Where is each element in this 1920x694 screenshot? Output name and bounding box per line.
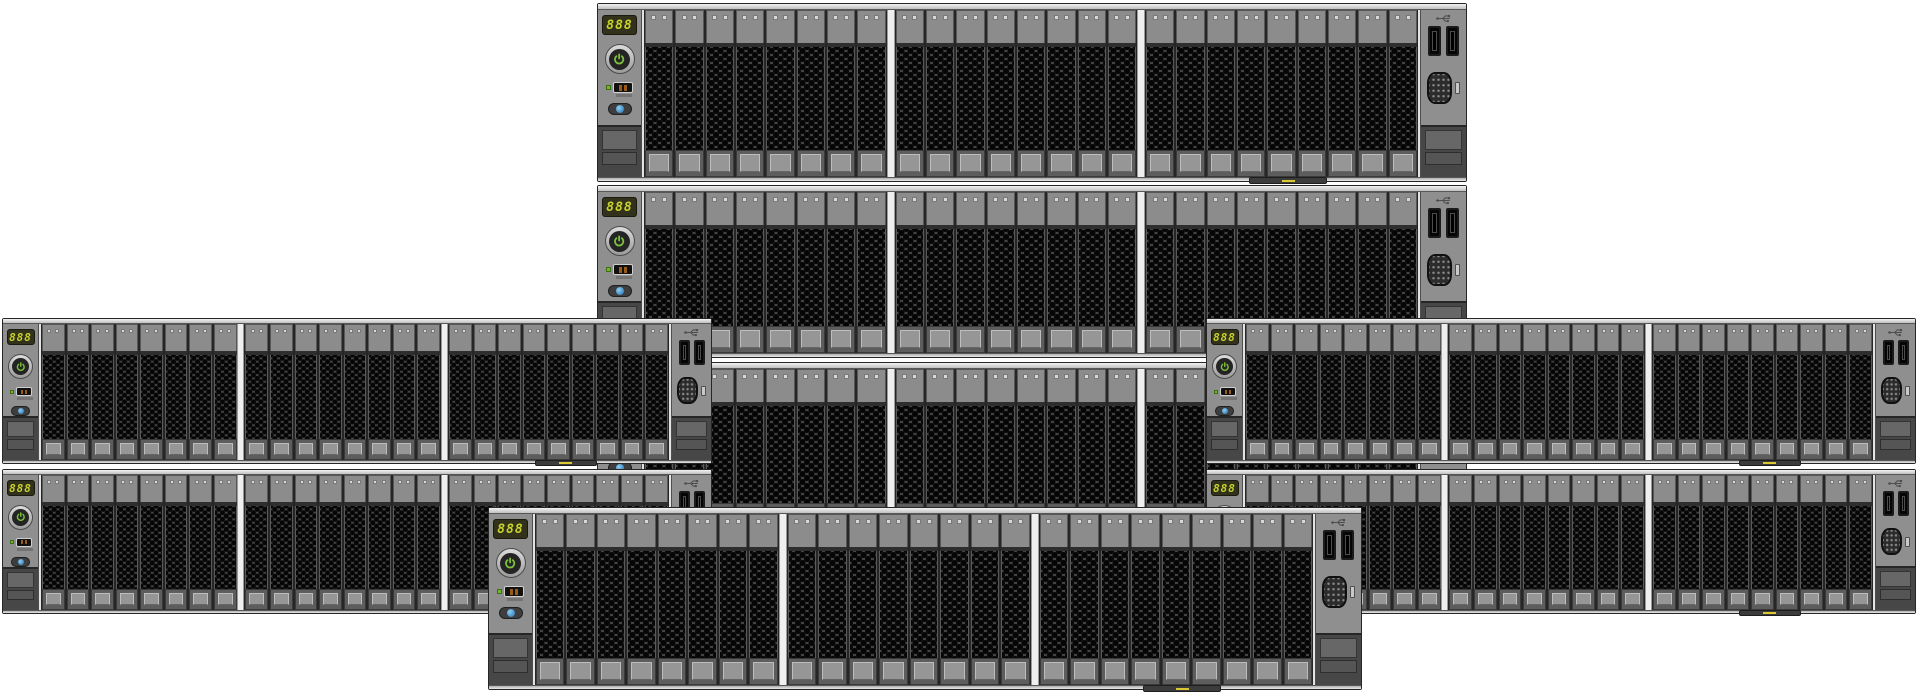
drive-led (943, 374, 948, 379)
drive-vent-grille (1849, 355, 1872, 439)
drive-bay (736, 192, 764, 353)
usb-port-row (1883, 340, 1909, 365)
drive-vent-grille (1572, 355, 1595, 439)
latch-handle (1211, 421, 1238, 437)
drive-led (1333, 329, 1337, 333)
drive-led (1251, 329, 1255, 333)
drive-bay (1078, 369, 1106, 530)
usb-port-row (1428, 208, 1459, 238)
chassis-bottom-rail (3, 460, 711, 463)
drive-group (644, 10, 887, 177)
drive-led (1345, 15, 1350, 20)
drive-vent-grille (1237, 229, 1265, 326)
drive-latch-handle (1112, 330, 1132, 348)
drive-vent-grille (827, 229, 855, 326)
drive-carrier-top (1223, 514, 1251, 547)
drive-led (927, 519, 932, 524)
drive-led (1561, 480, 1565, 484)
drive-led (1349, 329, 1353, 333)
drive-vent-grille (572, 355, 595, 439)
drive-led (1627, 329, 1631, 333)
drive-led (1658, 329, 1662, 333)
usb-port-row (679, 340, 705, 365)
drive-bay (1146, 192, 1174, 353)
drive-latch (1176, 150, 1204, 177)
chassis-bottom-rail (1207, 460, 1915, 463)
drive-bay (214, 475, 237, 610)
uid-button (1215, 406, 1234, 416)
drive-led (105, 480, 109, 484)
drive-latch (1727, 439, 1750, 460)
drive-led (552, 329, 556, 333)
drive-latch (1001, 658, 1029, 685)
drive-carrier-top (1358, 192, 1386, 225)
uid-led (616, 287, 624, 295)
drive-group (895, 10, 1138, 177)
usb-port (1883, 491, 1894, 516)
drive-bay (1776, 475, 1799, 610)
asset-tag (1249, 177, 1327, 184)
drive-latch-handle (1150, 330, 1170, 348)
drive-vent-grille (1295, 355, 1318, 439)
mini-display (613, 82, 633, 93)
drive-carrier-top (498, 475, 521, 502)
drive-led (1528, 329, 1532, 333)
drive-led (1537, 480, 1541, 484)
drive-latch (987, 326, 1015, 353)
drive-led (1054, 197, 1059, 202)
drive-led (154, 480, 158, 484)
drive-led (1586, 480, 1590, 484)
right-ear-latch (1316, 633, 1361, 685)
drive-bay (788, 514, 816, 685)
drive-bay (940, 514, 968, 685)
drive-latch (1271, 439, 1294, 460)
drive-latch (245, 589, 268, 610)
drive-carrier-top (706, 10, 734, 43)
drive-led (528, 329, 532, 333)
drive-latch-handle (740, 154, 760, 172)
drive-latch-handle (1503, 443, 1518, 455)
drive-carrier-top (1328, 192, 1356, 225)
drive-bay (627, 514, 655, 685)
drive-led (1259, 329, 1263, 333)
drive-carrier-top (1298, 10, 1326, 43)
drive-vent-grille (42, 355, 65, 439)
drive-led (742, 374, 747, 379)
drive-bay (1678, 324, 1701, 460)
drive-group (244, 324, 440, 460)
drive-vent-grille (719, 551, 747, 658)
drive-led (1855, 329, 1859, 333)
drive-vent-grille (1223, 551, 1251, 658)
drive-led (794, 519, 799, 524)
drive-carrier-top (1776, 324, 1799, 351)
power-button (496, 548, 526, 578)
drive-led (1168, 519, 1173, 524)
drive-latch-handle (710, 330, 730, 348)
drive-latch (393, 589, 416, 610)
drive-bay (879, 514, 907, 685)
drive-carrier-top (926, 369, 954, 402)
asset-tag-led (1176, 688, 1189, 690)
drive-led (1244, 15, 1249, 20)
drive-group-divider (779, 514, 787, 685)
drive-latch-handle (1166, 662, 1186, 680)
drive-led (1107, 519, 1112, 524)
drive-vent-grille (449, 355, 472, 439)
drive-bay (270, 324, 293, 460)
drive-bay (344, 324, 367, 460)
drive-carrier-top (393, 324, 416, 351)
drive-led (864, 197, 869, 202)
drive-bay (245, 475, 268, 610)
drive-led (1399, 329, 1403, 333)
drive-latch-handle (1780, 593, 1795, 605)
drive-led (1084, 15, 1089, 20)
drive-bay (1078, 10, 1106, 177)
drive-led (1183, 197, 1188, 202)
drive-carrier-top (1449, 324, 1472, 351)
drive-led (1244, 197, 1249, 202)
drive-carrier-top (566, 514, 594, 547)
drive-led (577, 329, 581, 333)
drive-latch (621, 439, 644, 460)
drive-latch (857, 150, 885, 177)
drive-led (406, 329, 410, 333)
drive-carrier-top (1047, 192, 1075, 225)
drive-vent-grille (1523, 355, 1546, 439)
drive-latch-handle (1625, 443, 1640, 455)
drive-bay (1162, 514, 1190, 685)
drive-latch (910, 658, 938, 685)
drive-vent-grille (736, 406, 764, 503)
drive-latch (1751, 439, 1774, 460)
drive-latch (1800, 439, 1823, 460)
drive-bay (245, 324, 268, 460)
drive-latch-handle (1453, 443, 1468, 455)
drive-led (195, 329, 199, 333)
drive-carrier-top (1040, 514, 1068, 547)
drive-led (1325, 480, 1329, 484)
drive-led (1153, 15, 1158, 20)
drive-carrier-top (1825, 324, 1848, 351)
drive-bay (1131, 514, 1159, 685)
drive-led (1163, 15, 1168, 20)
drive-vent-grille (971, 551, 999, 658)
usb-icon (683, 479, 701, 489)
drive-vent-grille (926, 406, 954, 503)
drive-vent-grille (523, 355, 546, 439)
drive-carrier-top (116, 324, 139, 351)
asset-tag-led (1282, 180, 1295, 182)
drive-carrier-top (1389, 192, 1417, 225)
vga-port (1427, 72, 1452, 104)
drive-led (723, 15, 728, 20)
drive-bay (1678, 475, 1701, 610)
drive-led (943, 197, 948, 202)
chassis-bottom-rail (598, 177, 1466, 181)
drive-led (528, 480, 532, 484)
drive-led (357, 329, 361, 333)
drive-led (398, 480, 402, 484)
drive-latch-handle (625, 443, 640, 455)
right-ear-latch (1876, 416, 1915, 460)
latch-handle (602, 130, 637, 150)
drive-latch (1176, 326, 1204, 353)
drive-latch-handle (1005, 662, 1025, 680)
drive-latch (987, 150, 1015, 177)
drive-bay (536, 514, 564, 685)
drive-carrier-top (67, 324, 90, 351)
drive-bay (797, 192, 825, 353)
drive-led (943, 15, 948, 20)
drive-latch-handle (1552, 443, 1567, 455)
drive-latch (645, 439, 668, 460)
drive-led (145, 329, 149, 333)
drive-latch-handle (1601, 593, 1616, 605)
drive-bay (1849, 324, 1872, 460)
drive-latch-handle (960, 330, 980, 348)
drive-carrier-top (788, 514, 816, 547)
drive-bay (1825, 475, 1848, 610)
drive-led (1707, 480, 1711, 484)
drive-latch-handle (723, 662, 743, 680)
drive-bay (1751, 324, 1774, 460)
drive-carrier-top (827, 192, 855, 225)
drive-led (1084, 374, 1089, 379)
drive-carrier-top (896, 192, 924, 225)
drive-latch-handle (453, 593, 468, 605)
drive-latch (1702, 589, 1725, 610)
drive-led (1365, 197, 1370, 202)
drive-carrier-top (140, 324, 163, 351)
drive-led (1553, 480, 1557, 484)
drive-vent-grille (1849, 506, 1872, 589)
drive-latch (417, 589, 440, 610)
drive-led (825, 519, 830, 524)
drive-led (1284, 197, 1289, 202)
drive-latch-handle (1074, 662, 1094, 680)
drive-latch-handle (861, 154, 881, 172)
drive-latch (1284, 658, 1312, 685)
drive-latch-handle (421, 593, 436, 605)
drive-led (1254, 197, 1259, 202)
drive-group-divider (237, 475, 244, 610)
drive-vent-grille (42, 506, 65, 589)
drive-latch-handle (944, 662, 964, 680)
drive-led (1374, 329, 1378, 333)
io-panel (1875, 324, 1915, 460)
drive-carrier-top (1800, 475, 1823, 502)
drive-led (431, 480, 435, 484)
drive-vent-grille (245, 506, 268, 589)
drive-latch (270, 439, 293, 460)
drive-led (1765, 329, 1769, 333)
drive-carrier-top (1295, 324, 1318, 351)
drive-carrier-top (1621, 475, 1644, 502)
drive-bay (1393, 324, 1416, 460)
drive-bay (896, 369, 924, 530)
drive-led (1290, 519, 1295, 524)
drive-vent-grille (621, 355, 644, 439)
drive-bay (827, 10, 855, 177)
power-button (1212, 354, 1237, 379)
drive-carrier-top (295, 324, 318, 351)
drive-bay (1047, 192, 1075, 353)
drive-bay (1702, 475, 1725, 610)
drive-latch-handle (323, 443, 338, 455)
drive-vent-grille (1017, 406, 1045, 503)
drive-latch (1572, 439, 1595, 460)
drive-latch (42, 589, 65, 610)
drive-latch (1751, 589, 1774, 610)
uid-led (616, 105, 624, 113)
drive-led (963, 15, 968, 20)
drive-vent-grille (1108, 47, 1136, 150)
drive-led (47, 480, 51, 484)
drive-led (662, 197, 667, 202)
drive-led (1125, 15, 1130, 20)
drive-vent-grille (1369, 355, 1392, 439)
drive-led (1431, 329, 1435, 333)
drive-latch-handle (1275, 443, 1290, 455)
drive-latch-handle (914, 662, 934, 680)
drive-led (1193, 374, 1198, 379)
drive-carrier-top (596, 475, 619, 502)
drive-group (1245, 324, 1441, 460)
drive-vent-grille (1108, 229, 1136, 326)
drive-led (1707, 329, 1711, 333)
drive-led (682, 197, 687, 202)
drive-vent-grille (766, 229, 794, 326)
chassis-bottom-rail (489, 685, 1361, 689)
drive-led (725, 519, 730, 524)
drive-led (1179, 519, 1184, 524)
drive-vent-grille (857, 406, 885, 503)
drive-led (1789, 329, 1793, 333)
drive-led (1334, 15, 1339, 20)
health-led (1214, 390, 1218, 394)
drive-latch (1246, 439, 1269, 460)
drive-latch-handle (991, 330, 1011, 348)
drive-latch-handle (144, 443, 159, 455)
drive-led (1153, 374, 1158, 379)
drive-led (1183, 15, 1188, 20)
drive-led (1148, 519, 1153, 524)
drive-bay (987, 192, 1015, 353)
drive-carrier-top (91, 324, 114, 351)
drive-led (487, 480, 491, 484)
drive-bay (270, 475, 293, 610)
drive-led (1512, 329, 1516, 333)
drive-led (398, 329, 402, 333)
vga-port (1427, 254, 1452, 286)
drive-vent-grille (597, 551, 625, 658)
drive-bay (987, 10, 1015, 177)
drive-bay (857, 369, 885, 530)
drive-led (129, 329, 133, 333)
drive-latch-handle (831, 330, 851, 348)
drive-led (1537, 329, 1541, 333)
drive-led (1034, 15, 1039, 20)
drive-bay (368, 324, 391, 460)
drive-latch-handle (1853, 443, 1868, 455)
drive-latch-handle (1227, 662, 1247, 680)
drive-latch-handle (1829, 443, 1844, 455)
drive-latch (940, 658, 968, 685)
drive-latch-handle (1271, 154, 1291, 172)
drive-bay (1523, 324, 1546, 460)
drive-latch-handle (1241, 154, 1261, 172)
drive-carrier-top (189, 475, 212, 502)
drive-led (814, 197, 819, 202)
drive-led (803, 374, 808, 379)
drive-latch-handle (421, 443, 436, 455)
drive-bay (736, 369, 764, 530)
drive-latch-handle (822, 662, 842, 680)
drive-led (736, 519, 741, 524)
drive-latch (344, 589, 367, 610)
drive-bay (596, 324, 619, 460)
drive-led (1003, 197, 1008, 202)
drive-vent-grille (1393, 506, 1416, 589)
drive-bay (1344, 324, 1367, 460)
drive-latch (1653, 589, 1676, 610)
drive-led (227, 480, 231, 484)
drive-led (1259, 480, 1263, 484)
drive-bay (849, 514, 877, 685)
drive-bay (319, 475, 342, 610)
drive-carrier-top (956, 10, 984, 43)
drive-led (1274, 197, 1279, 202)
drive-carrier-top (1653, 324, 1676, 351)
drive-led (552, 480, 556, 484)
drive-led (170, 329, 174, 333)
drive-led (382, 480, 386, 484)
drive-carrier-top (1101, 514, 1129, 547)
drive-led (308, 480, 312, 484)
drive-latch (797, 326, 825, 353)
drive-vent-grille (1825, 355, 1848, 439)
drive-bay (987, 369, 1015, 530)
drive-latch (1358, 150, 1386, 177)
drive-led (1423, 480, 1427, 484)
drive-bay (140, 324, 163, 460)
drive-latch-handle (801, 154, 821, 172)
drive-latch-handle (930, 154, 950, 172)
status-indicator-row (1214, 387, 1236, 396)
drive-led (1504, 329, 1508, 333)
drive-bay (926, 369, 954, 530)
drive-led (753, 197, 758, 202)
drive-carrier-top (42, 475, 65, 502)
drive-carrier-top (1621, 324, 1644, 351)
drive-carrier-top (736, 10, 764, 43)
drive-vent-grille (827, 47, 855, 150)
drive-bay (1108, 10, 1136, 177)
mini-display (1220, 387, 1236, 396)
io-panel (671, 324, 711, 460)
drive-group-divider (1441, 475, 1448, 610)
drive-led (585, 480, 589, 484)
drive-latch (1223, 658, 1251, 685)
drive-bay (688, 514, 716, 685)
drive-latch-handle (527, 443, 542, 455)
drive-led (1023, 15, 1028, 20)
power-icon (1216, 358, 1233, 375)
drive-led (1635, 480, 1639, 484)
